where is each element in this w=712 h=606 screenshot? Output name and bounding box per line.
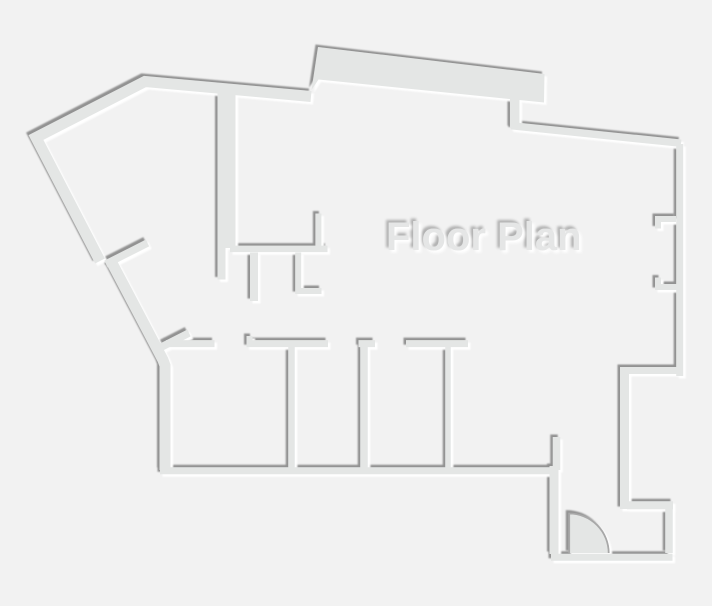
svg-text:Floor Plan: Floor Plan bbox=[386, 215, 582, 259]
